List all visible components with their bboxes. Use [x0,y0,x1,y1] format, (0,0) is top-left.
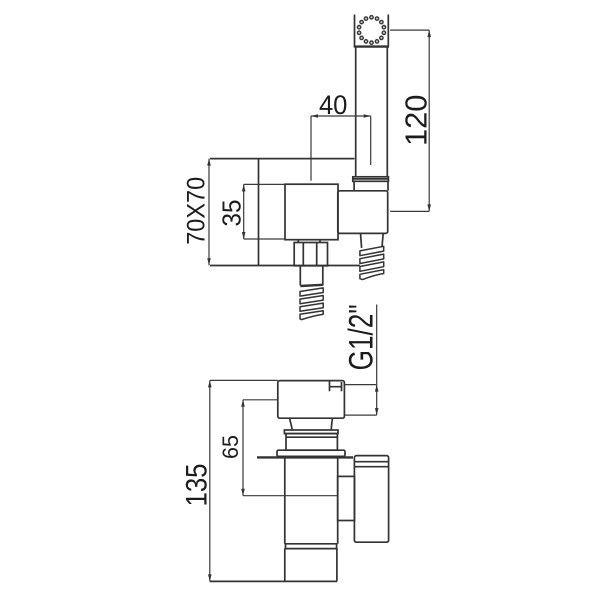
svg-text:70X70: 70X70 [183,177,211,245]
svg-text:G1/2": G1/2" [342,304,380,370]
svg-text:135: 135 [181,464,214,507]
svg-text:65: 65 [218,435,243,459]
svg-text:120: 120 [398,95,433,147]
svg-text:40: 40 [319,90,348,120]
svg-text:35: 35 [219,200,247,227]
